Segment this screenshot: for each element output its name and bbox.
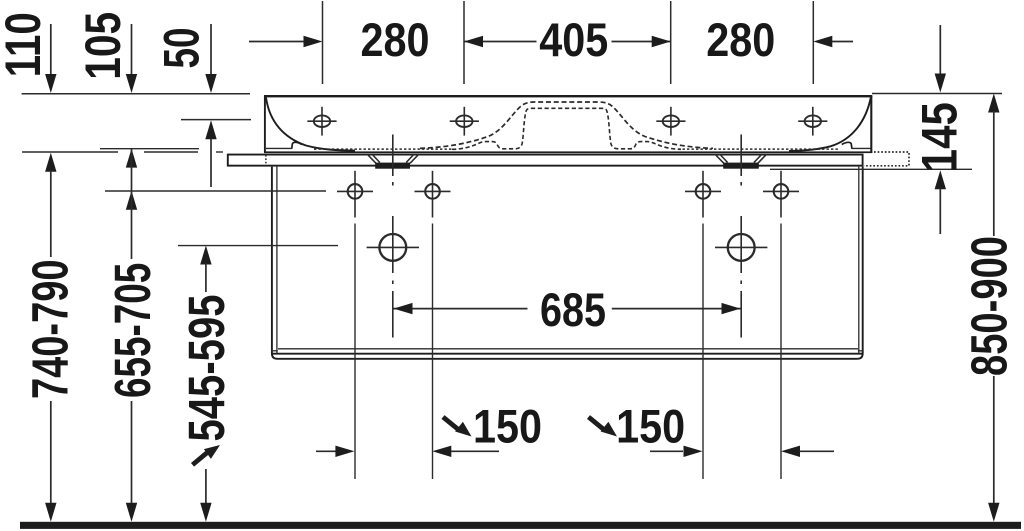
svg-text:545-595: 545-595 <box>178 295 235 442</box>
svg-text:655-705: 655-705 <box>104 263 161 398</box>
svg-text:850-900: 850-900 <box>961 236 1018 376</box>
svg-text:110: 110 <box>0 12 51 77</box>
svg-text:50: 50 <box>152 28 209 69</box>
svg-text:280: 280 <box>706 14 775 67</box>
svg-text:105: 105 <box>74 12 131 80</box>
svg-text:280: 280 <box>361 14 430 67</box>
svg-text:150: 150 <box>616 401 685 454</box>
svg-text:405: 405 <box>539 14 608 67</box>
svg-text:685: 685 <box>540 284 606 337</box>
svg-text:150: 150 <box>473 401 542 454</box>
svg-text:145: 145 <box>910 102 967 172</box>
svg-text:740-790: 740-790 <box>22 260 79 400</box>
